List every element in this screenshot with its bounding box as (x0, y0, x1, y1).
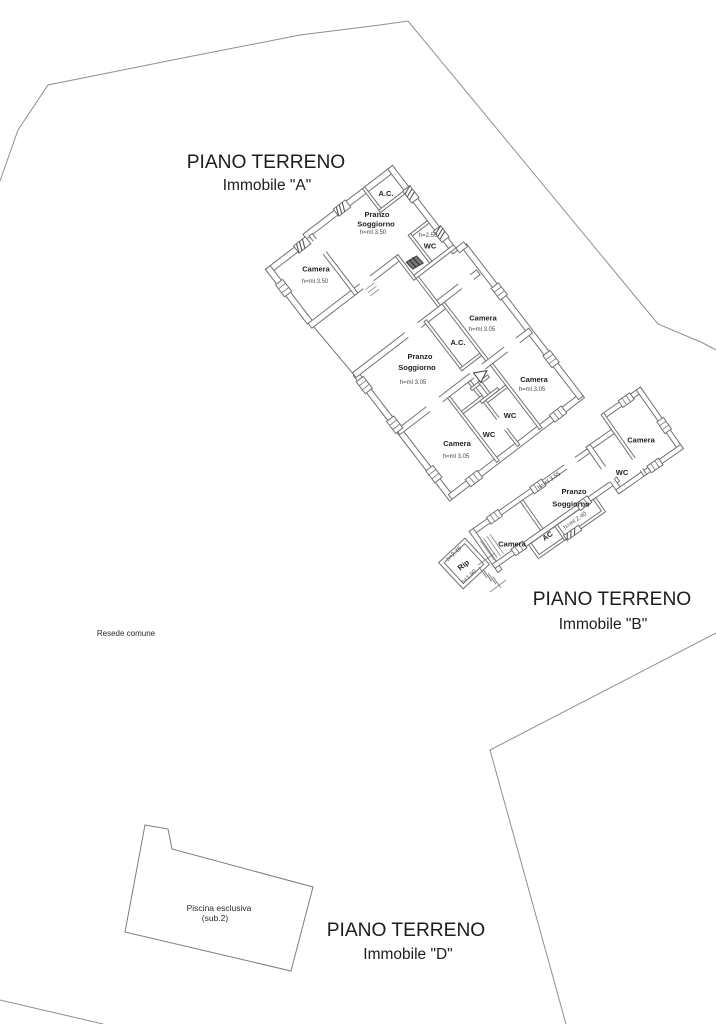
svg-text:Camera: Camera (443, 439, 471, 448)
svg-text:WC: WC (424, 242, 437, 251)
svg-text:Pranzo: Pranzo (561, 487, 586, 496)
svg-text:PIANO TERRENO: PIANO TERRENO (327, 920, 486, 941)
svg-text:PIANO TERRENO: PIANO TERRENO (533, 589, 692, 610)
svg-text:PIANO TERRENO: PIANO TERRENO (187, 152, 346, 173)
svg-text:Soggiorno: Soggiorno (357, 220, 395, 229)
svg-text:(sub.2): (sub.2) (202, 913, 229, 923)
svg-text:Pranzo: Pranzo (364, 210, 389, 219)
svg-text:Camera: Camera (627, 436, 655, 445)
svg-text:Pranzo: Pranzo (407, 352, 432, 361)
svg-text:Piscina esclusiva: Piscina esclusiva (187, 903, 252, 913)
svg-text:WC: WC (504, 411, 517, 420)
svg-text:h=ml 3.05: h=ml 3.05 (400, 380, 427, 386)
svg-text:h=ml 3.05: h=ml 3.05 (519, 387, 546, 393)
svg-text:A.C.: A.C. (379, 189, 394, 198)
svg-text:h=2.50: h=2.50 (419, 233, 438, 239)
svg-text:h=ml 3.05: h=ml 3.05 (443, 454, 470, 460)
svg-text:Soggiorno: Soggiorno (552, 500, 590, 509)
svg-text:WC: WC (483, 430, 496, 439)
svg-text:Camera: Camera (498, 540, 526, 549)
svg-text:Immobile "B": Immobile "B" (559, 616, 648, 633)
svg-text:h=ml 3.50: h=ml 3.50 (302, 279, 329, 285)
svg-text:Soggiorno: Soggiorno (398, 363, 436, 372)
svg-text:A.C.: A.C. (451, 338, 466, 347)
svg-text:Camera: Camera (520, 375, 548, 384)
svg-text:WC: WC (616, 468, 629, 477)
svg-text:Camera: Camera (469, 314, 497, 323)
svg-text:h=ml 3.50: h=ml 3.50 (360, 230, 387, 236)
svg-text:Camera: Camera (302, 265, 330, 274)
svg-text:Immobile "A": Immobile "A" (223, 177, 312, 194)
svg-text:Resede comune: Resede comune (97, 629, 156, 638)
svg-text:Immobile "D": Immobile "D" (363, 946, 452, 963)
svg-text:h=ml 3.05: h=ml 3.05 (469, 327, 496, 333)
